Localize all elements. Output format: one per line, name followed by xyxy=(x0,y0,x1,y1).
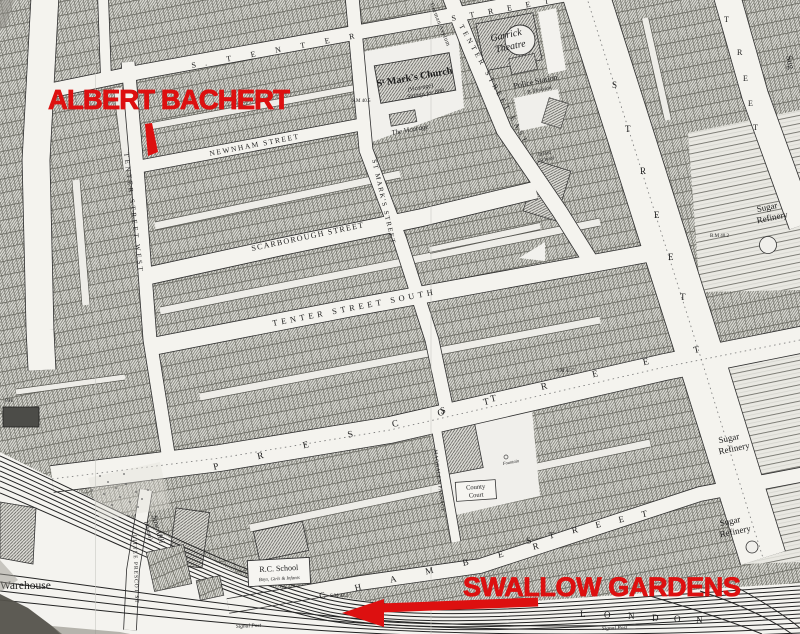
svg-text:T: T xyxy=(753,123,758,132)
svg-text:E: E xyxy=(743,74,748,83)
svg-text:N: N xyxy=(628,611,635,621)
svg-text:S.M 44.2: S.M 44.2 xyxy=(330,594,349,599)
svg-text:Court: Court xyxy=(469,491,484,499)
svg-text:E: E xyxy=(668,252,674,262)
svg-text:T: T xyxy=(625,124,631,134)
svg-text:T: T xyxy=(724,15,729,24)
svg-text:Signal Post: Signal Post xyxy=(602,625,628,632)
svg-text:P.H.: P.H. xyxy=(5,399,13,404)
svg-text:S: S xyxy=(612,80,617,90)
svg-text:L: L xyxy=(580,609,586,619)
svg-text:ALBERT BACHERT: ALBERT BACHERT xyxy=(48,84,290,115)
svg-text:S.M 40.5: S.M 40.5 xyxy=(352,99,371,104)
svg-text:T: T xyxy=(680,292,686,302)
svg-text:E: E xyxy=(748,99,753,108)
svg-text:O: O xyxy=(674,614,681,624)
svg-text:R: R xyxy=(640,166,646,176)
svg-text:N: N xyxy=(696,615,703,625)
svg-text:S.M 45.7: S.M 45.7 xyxy=(556,369,575,374)
svg-text:E: E xyxy=(654,210,660,220)
svg-text:SWALLOW GARDENS: SWALLOW GARDENS xyxy=(463,572,741,602)
svg-text:D: D xyxy=(652,613,659,623)
svg-text:R: R xyxy=(737,48,743,57)
svg-text:County: County xyxy=(466,483,486,491)
svg-text:O: O xyxy=(604,610,611,620)
svg-text:B.M 40.2: B.M 40.2 xyxy=(710,234,730,239)
